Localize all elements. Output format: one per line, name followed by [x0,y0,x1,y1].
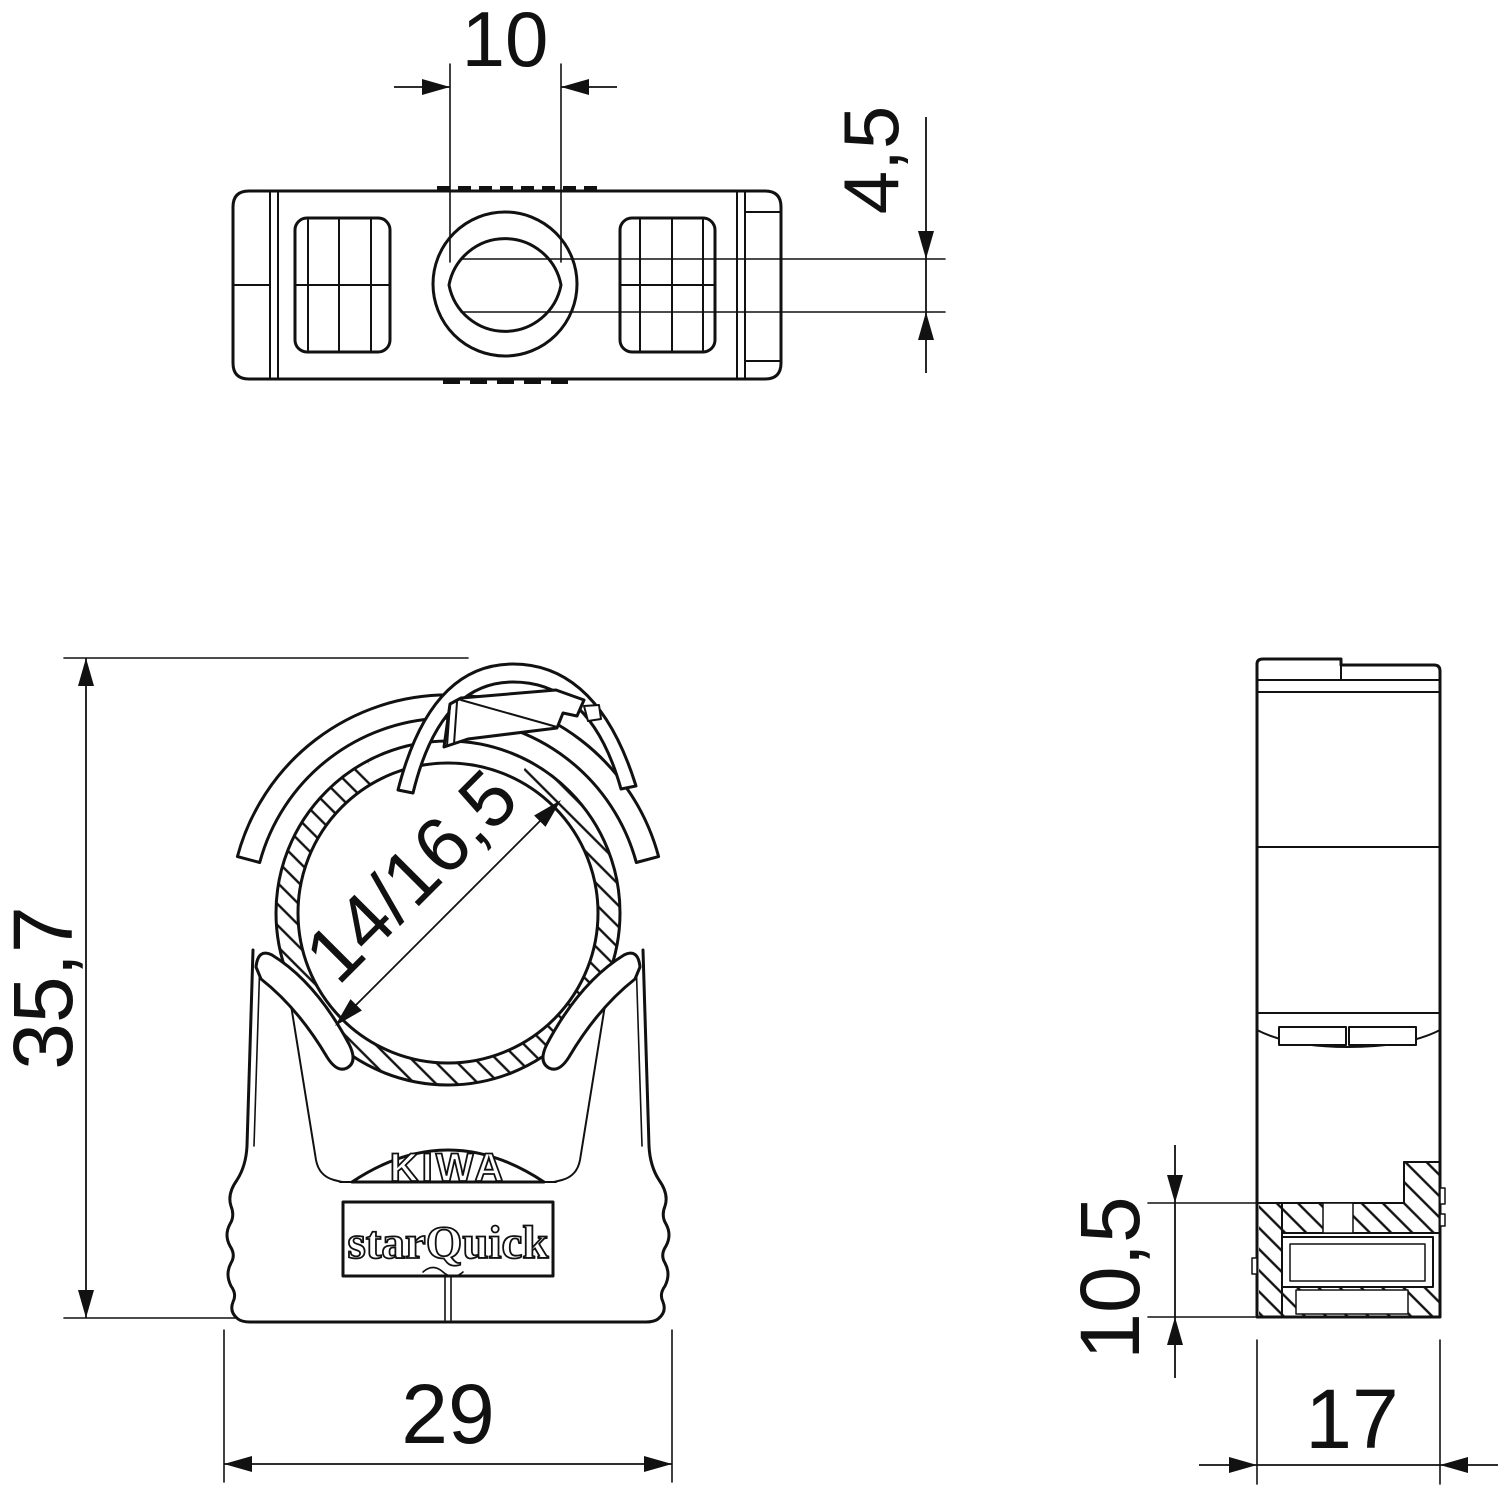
side-tab [1252,1258,1257,1274]
arrowhead [918,312,934,340]
side-tab [1440,1214,1445,1226]
dimension-overall-depth: 17 [1199,1340,1498,1484]
dimension-base-height: 10,5 [1063,1145,1259,1378]
dimension-value: 17 [1305,1372,1398,1466]
arrowhead [644,1456,672,1472]
base-section [1252,1162,1445,1317]
arrowhead [78,1290,94,1318]
screw-hole-lens [449,239,561,332]
arrowhead [422,79,450,95]
dimension-value: 35,7 [0,906,90,1070]
dimension-screw-seat-depth: 4,5 [827,106,934,373]
certification-label: KIWA [390,1146,506,1190]
arrowhead [561,79,589,95]
arrowhead [78,658,94,686]
latch-catch-step [584,705,601,721]
base-window [1296,1290,1408,1314]
anchor-slot-inner [1290,1244,1425,1281]
right-pad [620,218,715,352]
dimension-value: 4,5 [827,106,915,214]
arrowhead [224,1456,252,1472]
arrowhead [1440,1457,1468,1473]
dimension-value: 10,5 [1063,1196,1157,1360]
arrowhead [1167,1317,1183,1345]
side-tab [1440,1188,1445,1204]
arrowhead [918,231,934,259]
front-view: KIWA starQuick 14/16,5 [227,664,669,1322]
side-view [1252,659,1445,1317]
technical-drawing-page: 10 4,5 KIWA starQuick [0,0,1500,1485]
collar-notch [1349,1027,1416,1045]
dimension-slot-width: 10 [394,0,617,262]
section-hatch [1259,1203,1282,1317]
collar-notch [1279,1027,1346,1045]
dimension-value: 10 [462,0,549,83]
screw-channel-gap [1323,1203,1353,1233]
arrowhead [1229,1457,1257,1473]
section-hatch [1353,1162,1440,1233]
arrowhead [1167,1175,1183,1203]
base-inner-edge [254,958,260,1146]
pipe-clamp-drawing: 10 4,5 KIWA starQuick [0,0,1500,1485]
section-hatch [1282,1203,1323,1233]
left-pad [295,218,390,352]
brand-label: starQuick [347,1217,549,1269]
base-inner-edge [636,958,642,1146]
dimension-value: 29 [401,1367,494,1461]
dimension-overall-width: 29 [224,1330,672,1482]
top-view [233,189,945,381]
